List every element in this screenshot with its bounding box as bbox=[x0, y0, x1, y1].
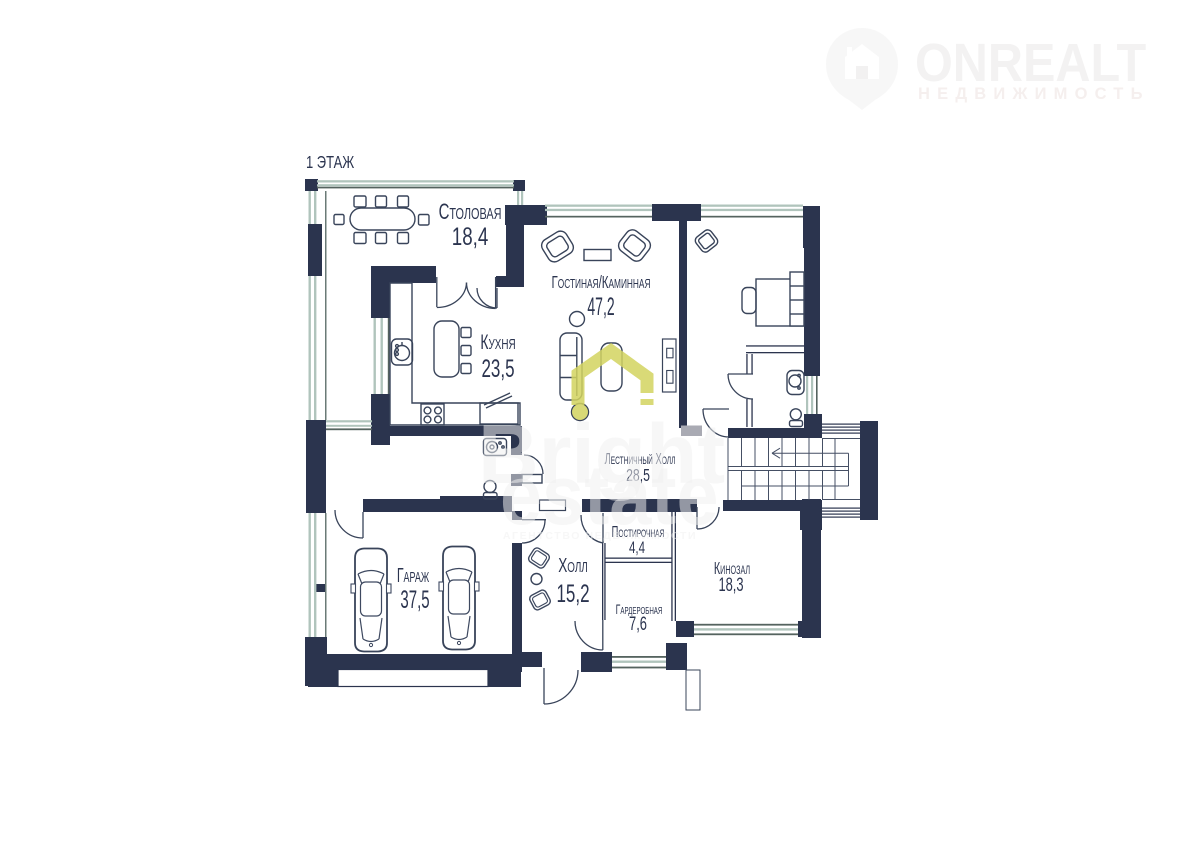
svg-text:НЕДВИЖИМОСТЬ: НЕДВИЖИМОСТЬ bbox=[918, 85, 1150, 103]
svg-text:1 ЭТАЖ: 1 ЭТАЖ bbox=[306, 153, 355, 173]
svg-text:7,6: 7,6 bbox=[629, 614, 647, 635]
svg-text:estate: estate bbox=[500, 448, 719, 542]
svg-text:18,3: 18,3 bbox=[718, 575, 743, 596]
svg-text:АГЕНТСТВО НЕДВИЖИМОСТИ: АГЕНТСТВО НЕДВИЖИМОСТИ bbox=[503, 530, 697, 542]
svg-text:ГОСТИНАЯ/КАМИННАЯ: ГОСТИНАЯ/КАМИННАЯ bbox=[552, 273, 651, 293]
svg-text:23,5: 23,5 bbox=[481, 355, 514, 383]
svg-text:47,2: 47,2 bbox=[587, 294, 614, 321]
svg-text:15,2: 15,2 bbox=[556, 580, 589, 608]
svg-text:СТОЛОВАЯ: СТОЛОВАЯ bbox=[439, 199, 502, 224]
svg-text:ONREALT: ONREALT bbox=[915, 32, 1146, 93]
svg-text:ГАРАЖ: ГАРАЖ bbox=[397, 564, 429, 587]
svg-text:18,4: 18,4 bbox=[452, 222, 488, 250]
svg-text:КУХНЯ: КУХНЯ bbox=[480, 330, 515, 354]
svg-text:37,5: 37,5 bbox=[400, 586, 429, 614]
svg-text:ХОЛЛ: ХОЛЛ bbox=[558, 554, 588, 576]
